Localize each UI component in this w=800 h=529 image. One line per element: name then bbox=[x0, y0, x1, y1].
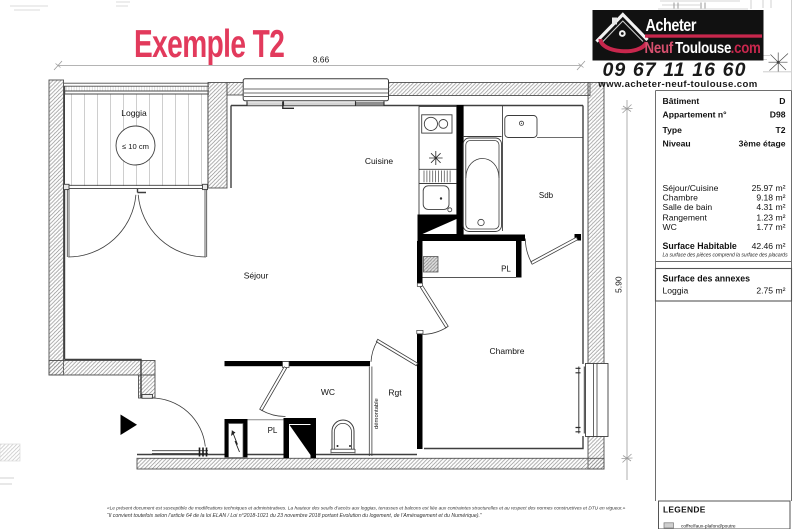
svg-text:8.66: 8.66 bbox=[313, 55, 330, 65]
svg-text:coffre/faux-plafond/poutre: coffre/faux-plafond/poutre bbox=[681, 524, 736, 529]
svg-text:3ème étage: 3ème étage bbox=[739, 139, 786, 149]
svg-text:Exemple T2: Exemple T2 bbox=[134, 23, 284, 67]
svg-text:Rgt: Rgt bbox=[388, 388, 402, 398]
svg-text:Cuisine: Cuisine bbox=[365, 156, 394, 166]
svg-text:La surface des pièces comprend: La surface des pièces comprend la surfac… bbox=[663, 253, 789, 259]
svg-text:Loggia: Loggia bbox=[663, 286, 689, 296]
svg-text:“Il convient toutefois selon l: “Il convient toutefois selon l’article 6… bbox=[107, 513, 482, 519]
svg-text:LEGENDE: LEGENDE bbox=[663, 505, 706, 515]
svg-text:T2: T2 bbox=[775, 125, 785, 135]
svg-text:25.97 m²: 25.97 m² bbox=[752, 183, 786, 193]
svg-text:Surface des annexes: Surface des annexes bbox=[663, 274, 751, 284]
svg-text:Neuf Toulouse.com: Neuf Toulouse.com bbox=[645, 40, 761, 57]
svg-text:Séjour/Cuisine: Séjour/Cuisine bbox=[663, 183, 719, 193]
svg-text:5.90: 5.90 bbox=[614, 276, 624, 293]
svg-text:Niveau: Niveau bbox=[663, 139, 691, 149]
svg-text:2.75 m²: 2.75 m² bbox=[756, 286, 785, 296]
svg-text:PL: PL bbox=[501, 265, 511, 274]
svg-text:D: D bbox=[779, 96, 785, 106]
svg-text:Acheter: Acheter bbox=[646, 17, 697, 36]
svg-text:WC: WC bbox=[321, 387, 335, 397]
svg-text:Salle de bain: Salle de bain bbox=[663, 202, 713, 212]
svg-text:Chambre: Chambre bbox=[490, 346, 525, 356]
svg-text:09 67 11 16 60: 09 67 11 16 60 bbox=[602, 59, 746, 81]
svg-text:Appartement n°: Appartement n° bbox=[663, 110, 728, 120]
svg-text:Surface Habitable: Surface Habitable bbox=[663, 241, 737, 251]
svg-text:Loggia: Loggia bbox=[121, 108, 147, 118]
svg-text:www.acheter-neuf-toulouse.com: www.acheter-neuf-toulouse.com bbox=[597, 79, 757, 90]
svg-text:42.46 m²: 42.46 m² bbox=[752, 241, 786, 251]
svg-text:WC: WC bbox=[663, 222, 677, 232]
svg-text:1.77 m²: 1.77 m² bbox=[756, 222, 785, 232]
svg-text:«Le présent document est susce: «Le présent document est susceptible de … bbox=[107, 506, 626, 512]
svg-text:Bâtiment: Bâtiment bbox=[663, 96, 700, 106]
svg-text:PL: PL bbox=[268, 426, 278, 435]
svg-text:D98: D98 bbox=[770, 110, 786, 120]
svg-text:≤ 10 cm: ≤ 10 cm bbox=[122, 142, 149, 151]
svg-text:Sdb: Sdb bbox=[539, 191, 554, 200]
svg-text:démontable: démontable bbox=[374, 397, 380, 429]
svg-text:Type: Type bbox=[663, 125, 683, 135]
svg-text:Chambre: Chambre bbox=[663, 193, 699, 203]
svg-text:1.23 m²: 1.23 m² bbox=[756, 213, 785, 223]
svg-text:Séjour: Séjour bbox=[244, 271, 269, 281]
svg-text:9.18 m²: 9.18 m² bbox=[756, 193, 785, 203]
svg-text:Rangement: Rangement bbox=[663, 213, 708, 223]
svg-text:4.31 m²: 4.31 m² bbox=[756, 202, 785, 212]
